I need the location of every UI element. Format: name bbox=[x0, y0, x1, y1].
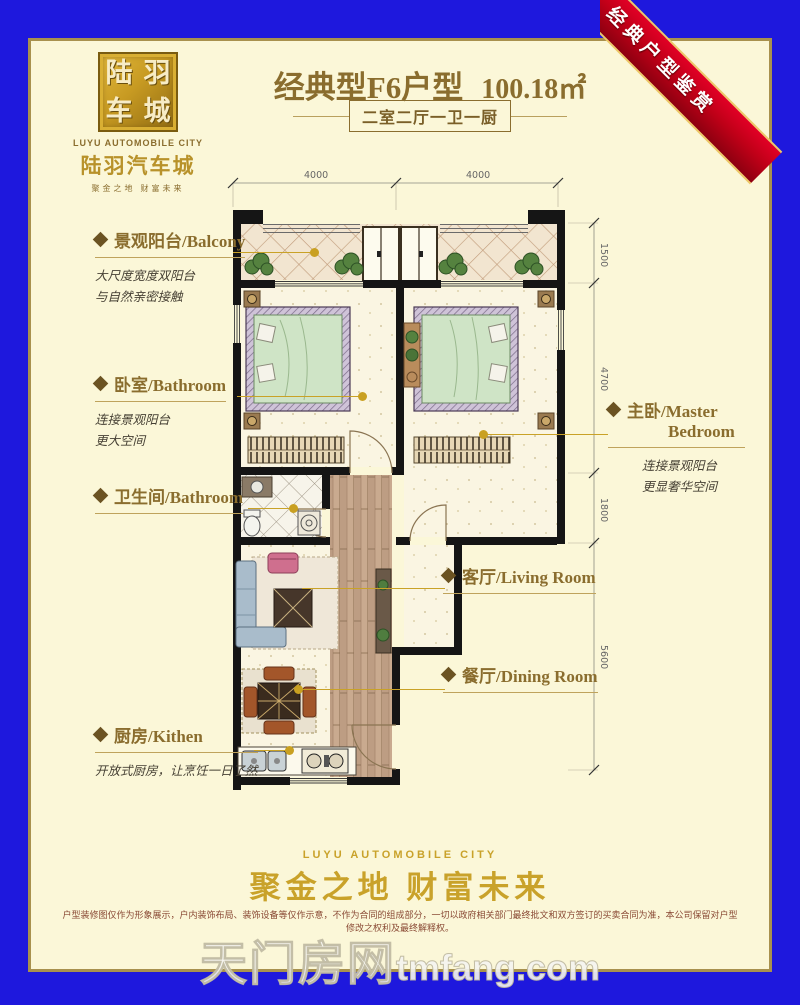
leader-dot bbox=[479, 430, 488, 439]
label-kitchen-desc: 开放式厨房，让烹饪一日了然 bbox=[95, 761, 258, 782]
layout-spec-badge: 二室二厅一卫一厨 bbox=[349, 100, 511, 132]
label-bathroom: 卫生间/Bathroom bbox=[95, 483, 243, 514]
footer-english: LUYU AUTOMOBILE CITY bbox=[0, 849, 800, 861]
watermark: 天门房网tmfang.com bbox=[0, 925, 800, 994]
watermark-site-name: 天门房网 bbox=[200, 939, 396, 991]
dim-right-1: 1500 bbox=[598, 243, 609, 267]
layout-spec-row: 二室二厅一卫一厨 bbox=[293, 100, 567, 132]
seal-char: 羽 bbox=[138, 56, 176, 90]
label-master-desc: 更显奢华空间 bbox=[642, 477, 745, 498]
label-master: 主卧/Master Bedroom 连接景观阳台 更显奢华空间 bbox=[608, 397, 745, 498]
leader-kitchen bbox=[254, 750, 290, 751]
seal-char: 陆 bbox=[100, 56, 138, 90]
label-living-title: 客厅/Living Room bbox=[462, 563, 596, 588]
leader-master bbox=[483, 434, 608, 435]
diamond-bullet-icon bbox=[441, 568, 457, 584]
nightstand-lamp bbox=[542, 417, 551, 426]
corner-ribbon-wrap: 经典户型鉴赏 bbox=[600, 0, 800, 200]
leader-dot bbox=[294, 685, 303, 694]
label-kitchen-title: 厨房/Kithen bbox=[114, 722, 203, 747]
nightstand-lamp bbox=[248, 417, 257, 426]
label-underline bbox=[608, 447, 745, 448]
logo-english-name: LUYU AUTOMOBILE CITY bbox=[52, 138, 224, 148]
chair-icon bbox=[244, 687, 257, 717]
label-bedroom-desc: 连接景观阳台 bbox=[95, 410, 226, 431]
label-dining-title: 餐厅/Dining Room bbox=[462, 662, 598, 687]
chair-icon bbox=[264, 721, 294, 734]
label-balcony-desc: 与自然亲密接触 bbox=[95, 287, 245, 308]
classic-ribbon: 经典户型鉴赏 bbox=[600, 0, 782, 184]
diamond-bullet-icon bbox=[606, 402, 622, 418]
plant-shelf-icon bbox=[404, 323, 420, 387]
leader-dot bbox=[358, 392, 367, 401]
label-balcony-title: 景观阳台/Balcony bbox=[114, 227, 245, 252]
balcony-window-frames bbox=[363, 227, 437, 281]
label-kitchen: 厨房/Kithen 开放式厨房，让烹饪一日了然 bbox=[95, 722, 258, 782]
seal-char: 城 bbox=[138, 94, 176, 128]
diamond-bullet-icon bbox=[93, 232, 109, 248]
logo-chinese-name: 陆羽汽车城 bbox=[52, 150, 224, 180]
poster-page: 陆 羽 车 城 LUYU AUTOMOBILE CITY 陆羽汽车城 聚金之地 … bbox=[0, 0, 800, 1005]
label-living: 客厅/Living Room bbox=[443, 563, 596, 594]
dim-right-3: 1800 bbox=[598, 498, 609, 522]
label-bathroom-title: 卫生间/Bathroom bbox=[114, 483, 243, 508]
leader-bathroom bbox=[248, 508, 294, 509]
label-master-title-2: Bedroom bbox=[668, 422, 745, 442]
living-strip-floor bbox=[404, 545, 454, 647]
dim-top-1: 4000 bbox=[304, 170, 328, 181]
chair-icon bbox=[303, 687, 316, 717]
footer-slogan: 聚金之地 财富未来 bbox=[0, 862, 800, 907]
label-bedroom-desc: 更大空间 bbox=[95, 431, 226, 452]
leader-dot bbox=[310, 248, 319, 257]
seal-char: 车 bbox=[100, 94, 138, 128]
diamond-bullet-icon bbox=[93, 488, 109, 504]
label-bedroom: 卧室/Bathroom 连接景观阳台 更大空间 bbox=[95, 371, 226, 452]
leader-dining bbox=[298, 689, 445, 690]
leader-bedroom bbox=[237, 396, 363, 397]
watermark-url: tmfang.com bbox=[396, 947, 600, 988]
chair-icon bbox=[264, 667, 294, 680]
divider-line bbox=[293, 116, 349, 117]
leader-living bbox=[302, 588, 445, 589]
dim-top-2: 4000 bbox=[466, 170, 490, 181]
dim-right-4: 5600 bbox=[598, 645, 609, 669]
label-dining: 餐厅/Dining Room bbox=[443, 662, 598, 693]
leader-dot bbox=[285, 746, 294, 755]
nightstand-lamp bbox=[248, 295, 257, 304]
dim-right-2: 4700 bbox=[598, 367, 609, 391]
leader-dot bbox=[289, 504, 298, 513]
label-balcony: 景观阳台/Balcony 大尺度宽度双阳台 与自然亲密接触 bbox=[95, 227, 245, 308]
divider-line bbox=[511, 116, 567, 117]
label-bedroom-title: 卧室/Bathroom bbox=[114, 371, 226, 396]
label-master-title-1: 主卧/Master bbox=[627, 397, 718, 422]
wardrobe-icon bbox=[248, 437, 344, 463]
floor-plan: 4000 4000 1500 4700 1800 5600 bbox=[200, 165, 620, 865]
armchair-icon bbox=[268, 553, 298, 573]
brand-logo: 陆 羽 车 城 LUYU AUTOMOBILE CITY 陆羽汽车城 聚金之地 … bbox=[52, 52, 224, 194]
label-balcony-desc: 大尺度宽度双阳台 bbox=[95, 266, 245, 287]
label-master-desc: 连接景观阳台 bbox=[642, 456, 745, 477]
leader-balcony bbox=[233, 252, 315, 253]
diamond-bullet-icon bbox=[441, 667, 457, 683]
master-wardrobe-icon bbox=[414, 437, 510, 463]
nightstand-lamp bbox=[542, 295, 551, 304]
diamond-bullet-icon bbox=[93, 376, 109, 392]
gold-seal-icon: 陆 羽 车 城 bbox=[98, 52, 178, 132]
logo-slogan: 聚金之地 财富未来 bbox=[52, 183, 224, 194]
master-bed-icon bbox=[414, 307, 518, 411]
diamond-bullet-icon bbox=[93, 727, 109, 743]
